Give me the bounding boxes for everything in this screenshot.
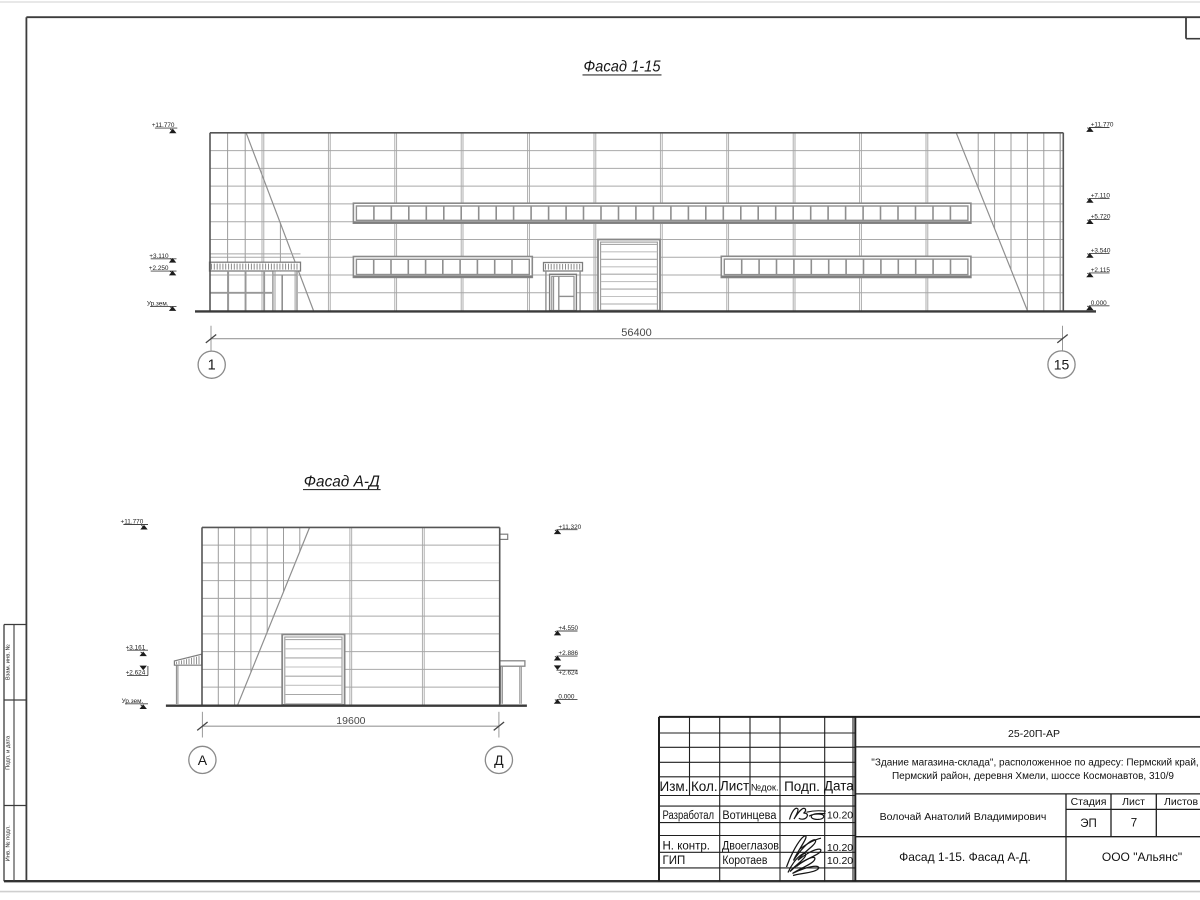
svg-text:25-20П-АР: 25-20П-АР [1008, 728, 1060, 740]
svg-text:Кол.: Кол. [691, 779, 718, 794]
svg-text:Н. контр.: Н. контр. [663, 840, 710, 852]
svg-text:Фасад А-Д: Фасад А-Д [304, 473, 380, 490]
svg-text:Подп.: Подп. [784, 779, 820, 794]
svg-text:Пермский район, деревня Хмели,: Пермский район, деревня Хмели, шоссе Кос… [892, 771, 1174, 782]
svg-text:ООО "Альянс": ООО "Альянс" [1102, 850, 1182, 864]
svg-text:19600: 19600 [336, 715, 365, 727]
svg-text:Дата: Дата [824, 779, 854, 794]
svg-text:Лист: Лист [720, 778, 749, 793]
svg-text:Лист: Лист [1122, 796, 1145, 808]
svg-text:Волочай Анатолий Владимирович: Волочай Анатолий Владимирович [880, 811, 1047, 823]
svg-text:А: А [198, 752, 208, 768]
svg-text:+2.624: +2.624 [558, 670, 578, 677]
svg-text:ЭП: ЭП [1080, 818, 1097, 830]
svg-text:Изм.: Изм. [660, 779, 689, 794]
svg-text:Коротаев: Коротаев [722, 855, 767, 867]
svg-text:Фасад 1-15: Фасад 1-15 [584, 59, 661, 76]
svg-text:56400: 56400 [621, 327, 652, 339]
svg-text:Листов: Листов [1164, 796, 1199, 808]
svg-text:10.20: 10.20 [827, 855, 853, 867]
svg-text:1: 1 [208, 358, 216, 374]
svg-text:№док.: №док. [751, 782, 779, 793]
svg-text:Инв. № подл.: Инв. № подл. [6, 825, 12, 861]
svg-text:"Здание магазина-склада", расп: "Здание магазина-склада", расположенное … [871, 757, 1198, 768]
svg-text:Д: Д [494, 752, 504, 768]
svg-text:15: 15 [1054, 356, 1070, 372]
svg-text:10.20: 10.20 [827, 842, 853, 854]
svg-text:Разработал: Разработал [663, 810, 715, 822]
svg-text:Вотинцева: Вотинцева [722, 810, 777, 822]
svg-text:ГИП: ГИП [663, 855, 686, 867]
svg-text:Двоеглазов: Двоеглазов [722, 840, 779, 852]
svg-text:Фасад 1-15. Фасад А-Д.: Фасад 1-15. Фасад А-Д. [899, 850, 1031, 864]
svg-text:Подп. и дата: Подп. и дата [6, 735, 12, 770]
svg-text:Стадия: Стадия [1071, 796, 1107, 808]
svg-text:Взам. инв. №: Взам. инв. № [6, 644, 12, 680]
svg-text:10.20: 10.20 [827, 810, 853, 822]
svg-text:7: 7 [1131, 818, 1137, 830]
